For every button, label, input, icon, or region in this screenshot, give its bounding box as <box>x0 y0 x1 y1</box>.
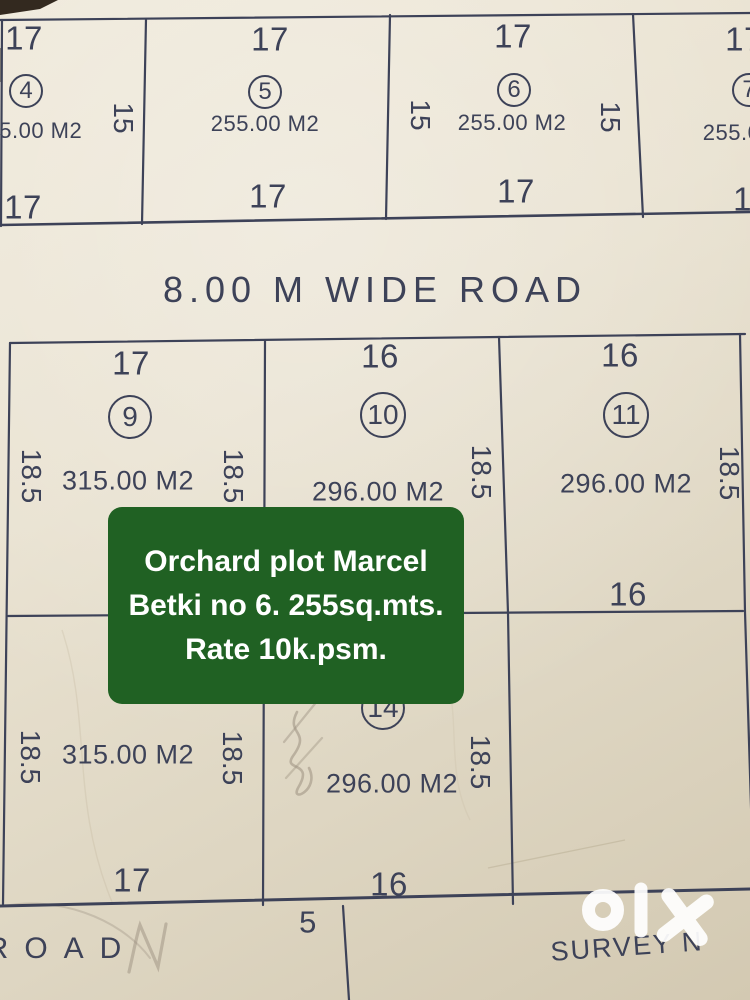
olx-o-icon <box>589 896 618 925</box>
olx-x-icon <box>663 896 706 940</box>
survey-plan-photo: 17 4 255.00 M2 17 15 17 5 255.00 M2 17 1… <box>0 0 750 1000</box>
olx-watermark <box>0 0 750 1000</box>
